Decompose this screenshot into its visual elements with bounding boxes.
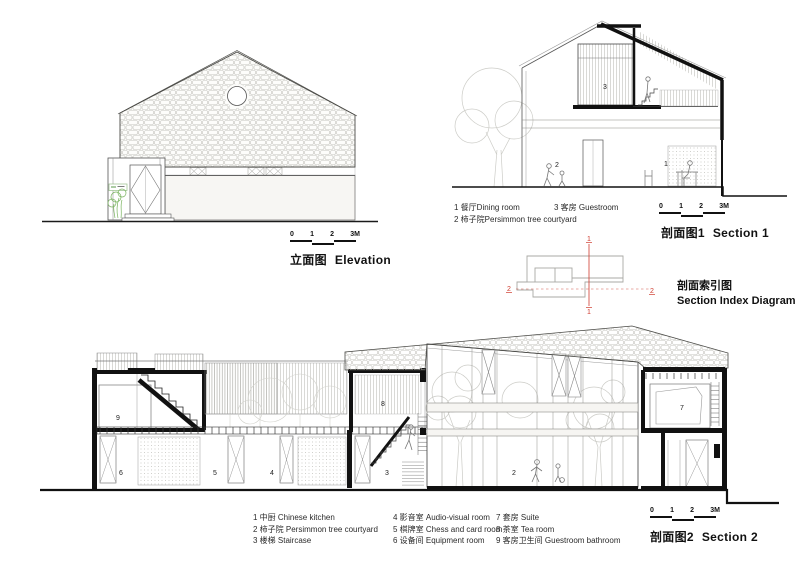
s1-hatched-wall xyxy=(668,146,716,186)
door-suite-lower xyxy=(686,440,708,487)
scale-bar-numbers: 0 1 2 3M xyxy=(290,231,360,238)
room-number-equip: 6 xyxy=(119,470,123,477)
elevation-title: 立面图Elevation xyxy=(290,251,391,268)
door-av xyxy=(280,436,293,483)
scale-bar-graphic xyxy=(650,516,716,521)
section2-drawing: 9 6 5 4 3 8 2 7 xyxy=(40,326,779,503)
legend-item: 1 中厨 Chinese kitchen xyxy=(253,512,378,524)
legend-item: 3 客房 Guestroom xyxy=(554,202,618,214)
hatched-wall-2 xyxy=(298,437,346,485)
room-number-staircase: 3 xyxy=(385,470,389,477)
section-index-diagram: 1 1 2 2 xyxy=(506,236,655,316)
room-number-tea: 8 xyxy=(381,401,385,408)
elevation-title-zh: 立面图 xyxy=(290,253,327,267)
section1-legend-col2: 3 客房 Guestroom xyxy=(554,202,618,214)
index-mark-2-left: 2 xyxy=(507,286,511,293)
door-staircase xyxy=(355,436,370,483)
legend-item: 2 柿子院 Persimmon tree courtyard xyxy=(253,524,378,536)
s2-mid-wall xyxy=(347,430,352,488)
scale-2: 2 xyxy=(330,231,334,238)
s2-right-block xyxy=(641,367,727,490)
s1-ground-line xyxy=(452,187,787,196)
room-number-courtyard-s1: 2 xyxy=(555,162,559,169)
index-mark-1-top: 1 xyxy=(587,236,591,243)
s1-floor-lines xyxy=(522,120,720,128)
s1-tree-icon xyxy=(455,68,533,187)
section1-title-zh: 剖面图1 xyxy=(661,226,705,240)
section2-title-zh: 剖面图2 xyxy=(650,530,694,544)
elevation-title-en: Elevation xyxy=(335,253,391,267)
door-equipment xyxy=(100,436,116,483)
section1-title-en: Section 1 xyxy=(713,226,769,240)
elevation-wall xyxy=(165,167,355,220)
section2-title: 剖面图2Section 2 xyxy=(650,528,758,545)
s2-ground-rooms xyxy=(100,430,370,488)
s1-door xyxy=(583,140,603,186)
section2-legend-col1: 1 中厨 Chinese kitchen 2 柿子院 Persimmon tre… xyxy=(253,512,378,547)
room-number-dining: 1 xyxy=(664,161,668,168)
section-index-title-en: Section Index Diagram xyxy=(677,294,796,309)
legend-item: 2 柿子院Persimmon tree courtyard xyxy=(454,214,577,226)
section2-scale-bar: 0 1 2 3M xyxy=(650,507,720,521)
scale-1: 1 xyxy=(679,203,683,210)
scale-2: 2 xyxy=(699,203,703,210)
section-index-title: 剖面索引图 Section Index Diagram xyxy=(677,279,796,309)
s2-ground-line xyxy=(40,490,779,503)
elevation-scale-bar: 0 1 2 3M xyxy=(290,231,360,245)
s2-floor-band-upper xyxy=(427,403,638,412)
section2-legend-col3: 7 套房 Suite 8 茶室 Tea room 9 客房卫生间 Guestro… xyxy=(496,512,620,547)
section2-legend-col2: 4 影音室 Audio-visual room 5 棋牌室 Chess and … xyxy=(393,512,502,547)
scale-1: 1 xyxy=(670,507,674,514)
room-number-chess: 5 xyxy=(213,470,217,477)
legend-item: 8 茶室 Tea room xyxy=(496,524,620,536)
door-chess xyxy=(228,436,244,483)
index-plan-outline xyxy=(517,256,623,297)
s2-slat-panels xyxy=(205,363,347,428)
round-window-icon xyxy=(225,84,249,108)
legend-item: 9 客房卫生间 Guestroom bathroom xyxy=(496,535,620,547)
scale-0: 0 xyxy=(650,507,654,514)
index-section-line-1 xyxy=(586,243,592,308)
legend-item: 5 棋牌室 Chess and card room xyxy=(393,524,502,536)
scale-bar-graphic xyxy=(290,240,356,245)
scale-1: 1 xyxy=(310,231,314,238)
legend-item: 4 影音室 Audio-visual room xyxy=(393,512,502,524)
section2-title-en: Section 2 xyxy=(702,530,758,544)
legend-item: 3 楼梯 Staircase xyxy=(253,535,378,547)
s2-floor-band-lower xyxy=(427,429,638,436)
hatched-wall-1 xyxy=(138,437,200,485)
scale-bar-numbers: 0 1 2 3M xyxy=(650,507,720,514)
legend-item: 7 套房 Suite xyxy=(496,512,620,524)
legend-item: 6 设备间 Equipment room xyxy=(393,535,502,547)
section1-title: 剖面图1Section 1 xyxy=(661,224,769,241)
s2-staircase-mid xyxy=(371,413,427,485)
room-number-courtyard-s2: 2 xyxy=(512,470,516,477)
scale-0: 0 xyxy=(290,231,294,238)
entrance-steps xyxy=(122,214,174,222)
scale-bar-graphic xyxy=(659,212,725,217)
index-mark-2-right: 2 xyxy=(650,288,654,295)
s2-joist-band xyxy=(97,427,427,434)
ladder-rungs-suite xyxy=(711,382,719,426)
scale-bar-numbers: 0 1 2 3M xyxy=(659,203,729,210)
scale-3m: 3M xyxy=(350,231,360,238)
section-index-title-zh: 剖面索引图 xyxy=(677,279,796,294)
elevation-roof xyxy=(118,51,357,168)
scale-2: 2 xyxy=(690,507,694,514)
entrance-door xyxy=(130,165,161,214)
room-number-bath: 9 xyxy=(116,415,120,422)
index-mark-1-bottom: 1 xyxy=(587,309,591,316)
drawing-sheet: 3 2 1 1 1 2 2 xyxy=(0,0,800,566)
section1-scale-bar: 0 1 2 3M xyxy=(659,203,729,217)
room-number-av: 4 xyxy=(270,470,274,477)
scale-0: 0 xyxy=(659,203,663,210)
room-number-suite: 7 xyxy=(680,405,684,412)
room-number-guestroom: 3 xyxy=(603,84,607,91)
entrance-porch xyxy=(108,158,174,222)
scale-3m: 3M xyxy=(710,507,720,514)
elevation-drawing xyxy=(42,51,378,222)
scale-3m: 3M xyxy=(719,203,729,210)
section1-drawing: 3 2 1 xyxy=(452,21,787,196)
s2-glazed-block xyxy=(420,344,638,490)
